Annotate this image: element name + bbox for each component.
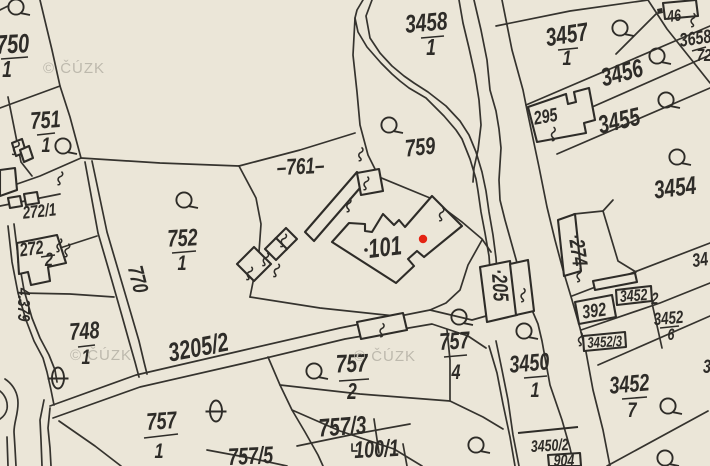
svg-text:272: 272 [17, 236, 45, 261]
svg-text:3452: 3452 [619, 286, 648, 306]
svg-text:272/1: 272/1 [21, 201, 57, 224]
svg-text:© ČÚZK: © ČÚZK [354, 348, 416, 365]
svg-text:7: 7 [627, 399, 637, 423]
svg-text:–761–: –761– [276, 154, 325, 181]
svg-text:757/5: 757/5 [227, 442, 274, 466]
svg-text:3452/3: 3452/3 [587, 333, 623, 352]
svg-text:100/1: 100/1 [353, 435, 399, 463]
svg-text:295: 295 [531, 104, 560, 130]
svg-text:757: 757 [438, 326, 471, 355]
svg-text:101: 101 [367, 230, 404, 263]
svg-text:751: 751 [29, 106, 61, 135]
svg-text:46: 46 [665, 7, 682, 27]
svg-text:1: 1 [530, 379, 539, 403]
svg-text:759: 759 [404, 132, 437, 162]
svg-text:1: 1 [154, 440, 163, 464]
svg-text:4.379: 4.379 [13, 287, 32, 321]
svg-text:1: 1 [426, 36, 436, 61]
svg-text:2: 2 [651, 290, 659, 308]
svg-text:3: 3 [703, 356, 710, 377]
svg-text:·274: ·274 [563, 232, 591, 268]
svg-text:© ČÚZK: © ČÚZK [70, 347, 132, 364]
svg-text:3454: 3454 [652, 171, 698, 204]
svg-text:4: 4 [451, 361, 461, 385]
svg-text:·205: ·205 [486, 268, 512, 302]
svg-text:392: 392 [581, 298, 608, 323]
svg-text:752: 752 [167, 224, 199, 253]
svg-text:© ČÚZK: © ČÚZK [43, 60, 105, 77]
svg-text:3450: 3450 [508, 348, 551, 379]
svg-text:757: 757 [145, 406, 178, 435]
svg-text:1: 1 [41, 134, 50, 158]
svg-text:2: 2 [346, 380, 357, 405]
svg-text:1: 1 [562, 47, 571, 71]
svg-text:750: 750 [0, 28, 30, 59]
svg-text:1: 1 [2, 58, 12, 83]
svg-text:904: 904 [554, 452, 575, 466]
svg-text:1: 1 [177, 252, 186, 276]
svg-text:748: 748 [68, 316, 100, 345]
svg-text:6: 6 [668, 326, 676, 344]
svg-text:3452: 3452 [608, 369, 651, 400]
svg-text:2: 2 [44, 249, 53, 270]
svg-text:72: 72 [697, 46, 710, 65]
svg-text:3458: 3458 [404, 7, 449, 39]
